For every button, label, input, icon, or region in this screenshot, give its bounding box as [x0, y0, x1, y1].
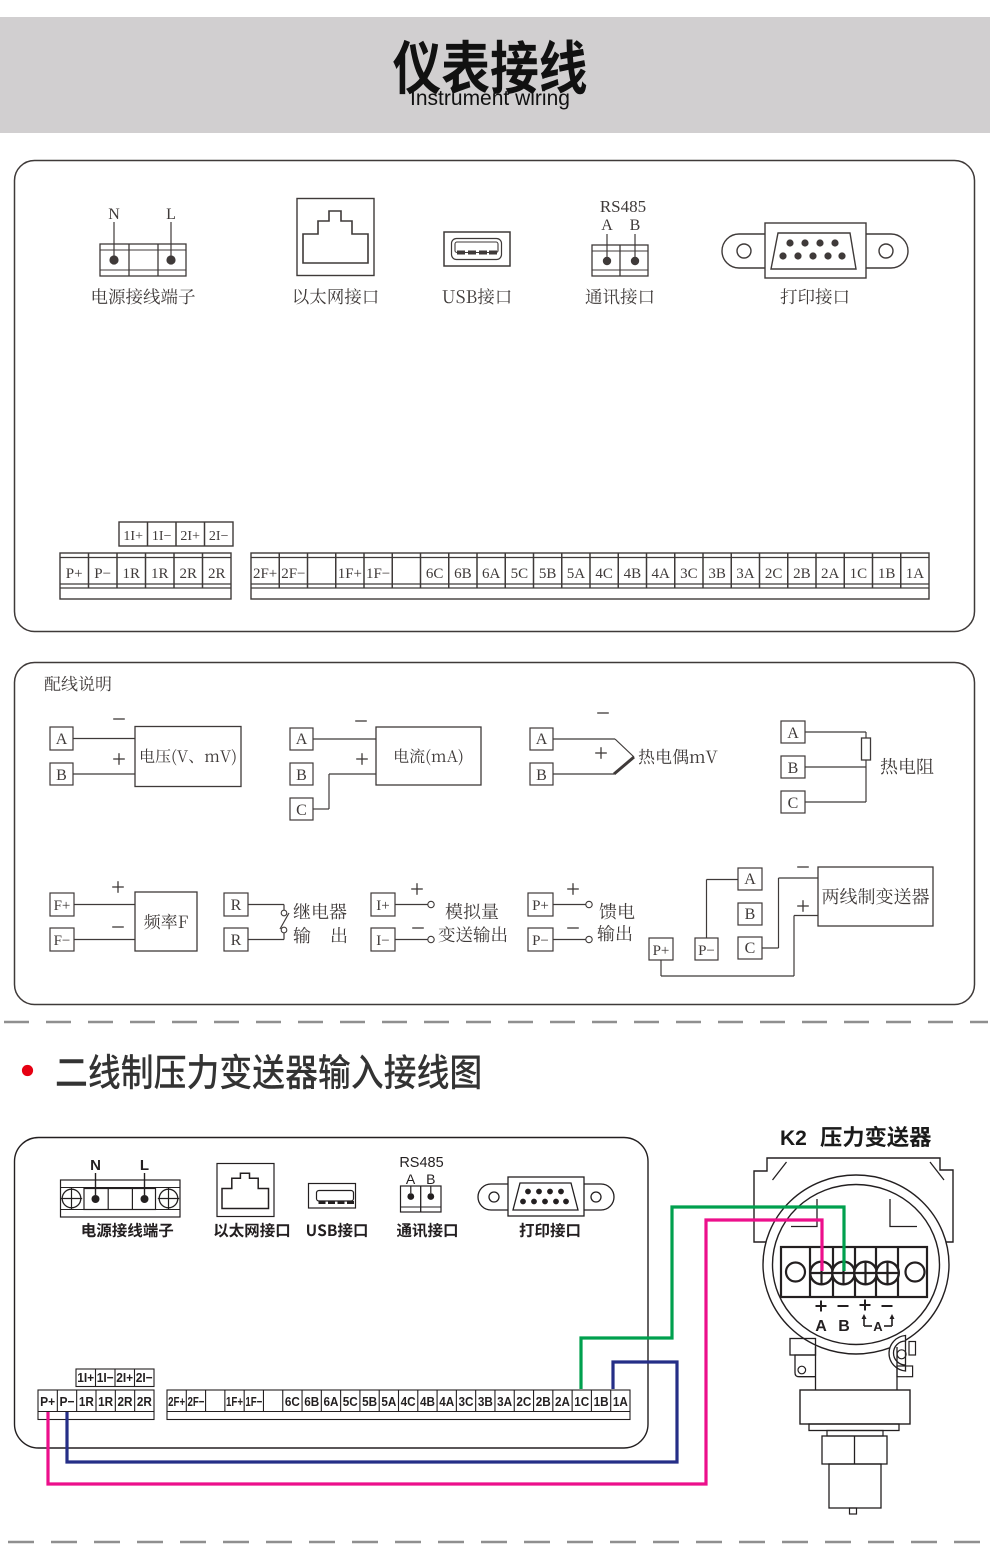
svg-text:A: A [744, 871, 756, 888]
svg-text:A: A [815, 1318, 827, 1335]
svg-text:2B: 2B [793, 566, 811, 582]
svg-text:A: A [406, 1171, 416, 1187]
svg-text:B: B [745, 906, 756, 923]
svg-text:4B: 4B [420, 1394, 435, 1409]
svg-text:R: R [231, 897, 242, 914]
svg-text:F+: F+ [54, 898, 71, 914]
svg-text:1R: 1R [151, 566, 169, 582]
svg-text:B: B [838, 1318, 850, 1335]
svg-text:L: L [166, 206, 176, 223]
svg-text:2R: 2R [118, 1394, 134, 1409]
svg-text:1B: 1B [878, 566, 896, 582]
svg-text:6A: 6A [482, 566, 501, 582]
svg-text:3A: 3A [497, 1394, 513, 1409]
svg-text:2A: 2A [555, 1394, 571, 1409]
svg-text:1I−: 1I− [97, 1370, 114, 1385]
svg-text:A: A [536, 731, 548, 748]
svg-text:1F+: 1F+ [226, 1394, 243, 1409]
svg-text:B: B [630, 217, 641, 234]
svg-text:2F+: 2F+ [168, 1394, 185, 1409]
svg-text:1A: 1A [613, 1394, 629, 1409]
svg-text:I+: I+ [376, 898, 389, 914]
svg-text:2F−: 2F− [281, 566, 305, 582]
svg-text:5A: 5A [567, 566, 586, 582]
svg-text:2I−: 2I− [136, 1370, 153, 1385]
svg-text:4C: 4C [595, 566, 613, 582]
svg-text:1F+: 1F+ [338, 566, 362, 582]
svg-text:2R: 2R [179, 566, 197, 582]
svg-text:3C: 3C [680, 566, 698, 582]
svg-text:4C: 4C [401, 1394, 417, 1409]
svg-text:C: C [788, 795, 799, 812]
svg-text:6A: 6A [323, 1394, 339, 1409]
svg-text:B: B [788, 760, 799, 777]
svg-text:Instrument wiring: Instrument wiring [410, 87, 570, 110]
svg-text:4B: 4B [624, 566, 642, 582]
svg-text:4A: 4A [439, 1394, 455, 1409]
svg-text:4A: 4A [651, 566, 670, 582]
svg-text:K2: K2 [780, 1127, 807, 1150]
svg-text:2C: 2C [516, 1394, 532, 1409]
svg-text:3B: 3B [708, 566, 726, 582]
svg-text:1B: 1B [594, 1394, 609, 1409]
svg-text:B: B [296, 767, 307, 784]
svg-text:5C: 5C [343, 1394, 359, 1409]
svg-text:P−: P− [60, 1394, 75, 1409]
svg-text:I−: I− [376, 933, 389, 949]
svg-text:B: B [56, 767, 67, 784]
svg-text:P−: P− [94, 566, 111, 582]
svg-text:2I+: 2I+ [116, 1370, 133, 1385]
svg-text:P+: P+ [66, 566, 83, 582]
svg-text:R: R [231, 932, 242, 949]
svg-text:1C: 1C [574, 1394, 590, 1409]
svg-text:2C: 2C [765, 566, 783, 582]
svg-text:2F+: 2F+ [253, 566, 277, 582]
svg-text:RS485: RS485 [600, 197, 646, 216]
svg-text:A: A [56, 731, 68, 748]
svg-text:3C: 3C [459, 1394, 475, 1409]
svg-text:C: C [745, 940, 756, 957]
svg-text:1R: 1R [79, 1394, 95, 1409]
svg-text:5B: 5B [539, 566, 557, 582]
svg-text:P+: P+ [653, 943, 670, 959]
svg-text:P+: P+ [40, 1394, 55, 1409]
svg-text:6B: 6B [454, 566, 472, 582]
svg-text:C: C [296, 802, 307, 819]
svg-text:1I−: 1I− [152, 529, 172, 544]
svg-text:2I−: 2I− [209, 529, 229, 544]
svg-text:2R: 2R [208, 566, 226, 582]
svg-text:1C: 1C [850, 566, 868, 582]
svg-text:F−: F− [54, 933, 71, 949]
svg-text:3B: 3B [478, 1394, 493, 1409]
svg-text:2R: 2R [137, 1394, 153, 1409]
svg-text:A: A [296, 731, 308, 748]
svg-text:N: N [90, 1157, 101, 1174]
svg-text:A: A [787, 725, 799, 742]
svg-text:2F−: 2F− [187, 1394, 204, 1409]
svg-text:N: N [108, 206, 120, 223]
svg-text:5A: 5A [381, 1394, 397, 1409]
svg-text:B: B [426, 1171, 435, 1187]
svg-text:P−: P− [698, 943, 715, 959]
svg-text:3A: 3A [736, 566, 755, 582]
svg-text:6C: 6C [285, 1394, 301, 1409]
svg-text:P−: P− [532, 933, 549, 949]
svg-text:A: A [601, 217, 613, 234]
svg-text:B: B [536, 767, 547, 784]
svg-text:P+: P+ [532, 898, 549, 914]
svg-text:2A: 2A [821, 566, 840, 582]
svg-text:L: L [140, 1157, 149, 1174]
svg-text:1R: 1R [98, 1394, 114, 1409]
svg-text:A: A [873, 1319, 883, 1334]
svg-text:5C: 5C [511, 566, 529, 582]
svg-text:6C: 6C [426, 566, 444, 582]
svg-text:1I+: 1I+ [123, 529, 143, 544]
svg-text:RS485: RS485 [399, 1155, 443, 1171]
svg-text:2B: 2B [536, 1394, 551, 1409]
svg-text:6B: 6B [304, 1394, 319, 1409]
svg-text:1I+: 1I+ [77, 1370, 94, 1385]
svg-text:5B: 5B [362, 1394, 377, 1409]
svg-text:1R: 1R [122, 566, 140, 582]
svg-text:1F−: 1F− [366, 566, 390, 582]
svg-text:1A: 1A [906, 566, 925, 582]
svg-text:2I+: 2I+ [180, 529, 200, 544]
svg-text:1F−: 1F− [245, 1394, 262, 1409]
